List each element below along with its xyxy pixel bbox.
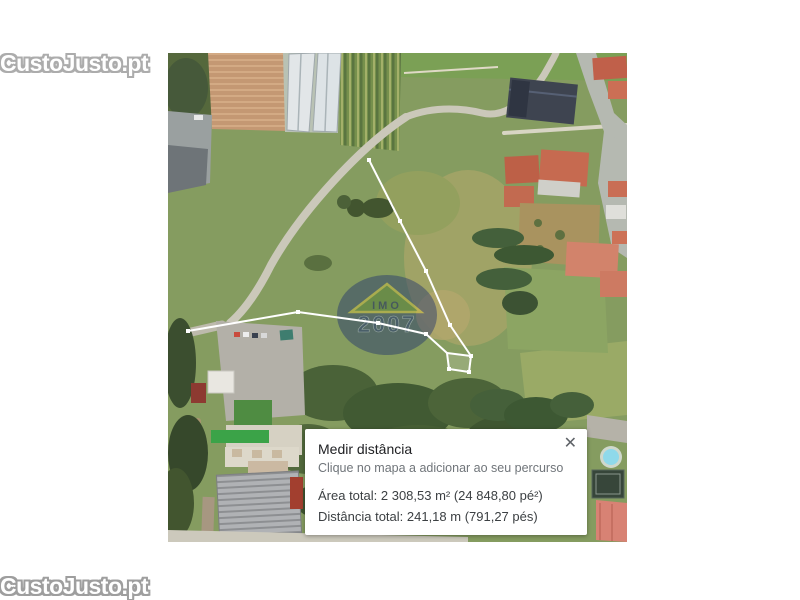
agency-year: 2007: [357, 311, 416, 337]
distance-total-value: Distância total: 241,18 m (791,27 pés): [318, 508, 573, 526]
custojusto-watermark-bottom: CustoJusto.pt: [0, 573, 148, 600]
yard-top-left: [168, 111, 212, 193]
agency-watermark: IMO 2007: [337, 275, 437, 355]
dialog-title: Medir distância: [318, 440, 573, 458]
measure-distance-dialog: ✕ Medir distância Clique no mapa a adici…: [305, 429, 587, 535]
dialog-subtitle: Clique no mapa a adicionar ao seu percur…: [318, 460, 573, 477]
custojusto-watermark-top: CustoJusto.pt: [0, 50, 148, 77]
listing-photo-stage: IMO 2007: [0, 0, 800, 600]
area-total-value: Área total: 2 308,53 m² (24 848,80 pé²): [318, 487, 573, 505]
close-icon[interactable]: ✕: [564, 434, 577, 454]
